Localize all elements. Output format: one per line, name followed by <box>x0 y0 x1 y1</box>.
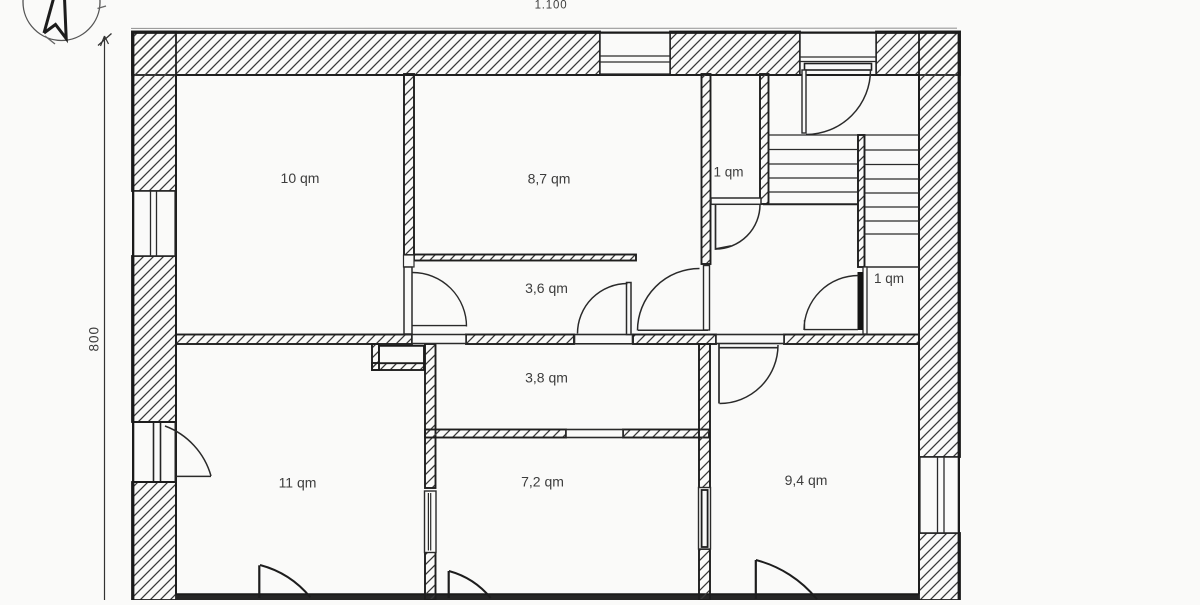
svg-text:9,4 qm: 9,4 qm <box>785 472 828 488</box>
svg-text:800: 800 <box>87 326 102 352</box>
svg-text:1 qm: 1 qm <box>713 165 743 180</box>
svg-text:1 qm: 1 qm <box>874 271 904 286</box>
svg-text:8,7 qm: 8,7 qm <box>528 171 571 187</box>
svg-text:1.100: 1.100 <box>535 0 568 11</box>
svg-text:11 qm: 11 qm <box>279 475 317 491</box>
svg-text:10 qm: 10 qm <box>281 170 320 186</box>
svg-text:7,2 qm: 7,2 qm <box>521 474 564 490</box>
svg-text:3,8 qm: 3,8 qm <box>525 370 568 386</box>
svg-text:3,6 qm: 3,6 qm <box>525 280 568 296</box>
